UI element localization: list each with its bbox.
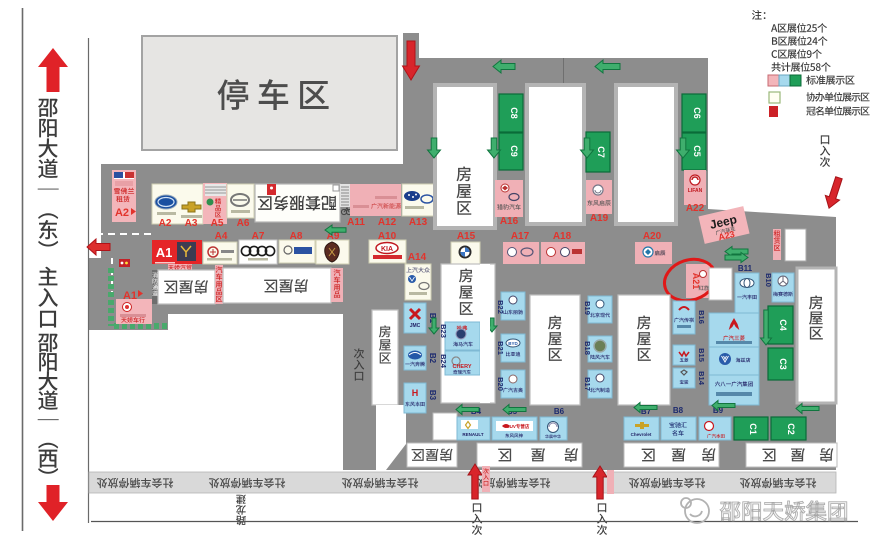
- svg-text:A22: A22: [686, 203, 705, 214]
- svg-text:A19: A19: [590, 213, 609, 224]
- svg-text:B3: B3: [428, 390, 437, 401]
- svg-text:B16: B16: [697, 310, 706, 324]
- svg-text:B14: B14: [697, 371, 706, 386]
- svg-text:A2: A2: [115, 207, 129, 219]
- svg-text:B17: B17: [583, 377, 592, 391]
- svg-text:C9: C9: [509, 145, 519, 157]
- svg-text:A14: A14: [408, 252, 427, 263]
- svg-text:B11: B11: [738, 264, 753, 273]
- svg-text:SUV专营店: SUV专营店: [507, 423, 530, 430]
- svg-text:B23: B23: [439, 324, 448, 338]
- svg-text:A16: A16: [500, 216, 519, 227]
- svg-text:C1: C1: [748, 423, 758, 435]
- svg-text:C6: C6: [692, 107, 702, 119]
- svg-text:C3: C3: [778, 358, 788, 370]
- svg-text:A18: A18: [553, 231, 572, 242]
- svg-text:A13: A13: [409, 217, 428, 228]
- svg-text:B6: B6: [554, 407, 565, 416]
- svg-text:A1: A1: [156, 245, 173, 260]
- svg-text:A3: A3: [185, 218, 198, 229]
- svg-text:B20: B20: [496, 377, 505, 391]
- svg-text:B21: B21: [496, 341, 505, 355]
- svg-text:LIFAN: LIFAN: [688, 188, 703, 194]
- svg-text:A4: A4: [215, 231, 228, 242]
- svg-text:C5: C5: [692, 145, 702, 157]
- svg-text:RENAULT: RENAULT: [462, 432, 483, 437]
- svg-text:B18: B18: [583, 341, 592, 355]
- svg-text:B24: B24: [439, 354, 448, 369]
- svg-text:B19: B19: [583, 301, 592, 315]
- svg-text:B8: B8: [673, 406, 684, 415]
- svg-text:C4: C4: [778, 319, 788, 331]
- svg-text:A17: A17: [511, 231, 530, 242]
- svg-text:KIA: KIA: [381, 246, 393, 253]
- svg-text:A15: A15: [457, 231, 476, 242]
- svg-text:B22: B22: [496, 300, 505, 314]
- svg-text:B2: B2: [428, 353, 437, 364]
- svg-text:CHERY: CHERY: [452, 364, 471, 370]
- svg-text:A20: A20: [643, 231, 662, 242]
- svg-text:C2: C2: [786, 423, 796, 435]
- svg-text:C8: C8: [509, 107, 519, 119]
- svg-text:A2: A2: [159, 218, 172, 229]
- svg-text:H: H: [412, 388, 419, 398]
- svg-text:Chevrolet: Chevrolet: [631, 432, 652, 437]
- svg-text:A12: A12: [378, 217, 397, 228]
- svg-text:A6: A6: [237, 218, 250, 229]
- svg-text:C7: C7: [596, 146, 606, 158]
- svg-text:JMC: JMC: [410, 323, 421, 329]
- svg-text:B15: B15: [697, 348, 706, 362]
- svg-text:A5: A5: [211, 218, 224, 229]
- svg-text:A11: A11: [347, 217, 365, 228]
- svg-text:BYD: BYD: [508, 341, 518, 346]
